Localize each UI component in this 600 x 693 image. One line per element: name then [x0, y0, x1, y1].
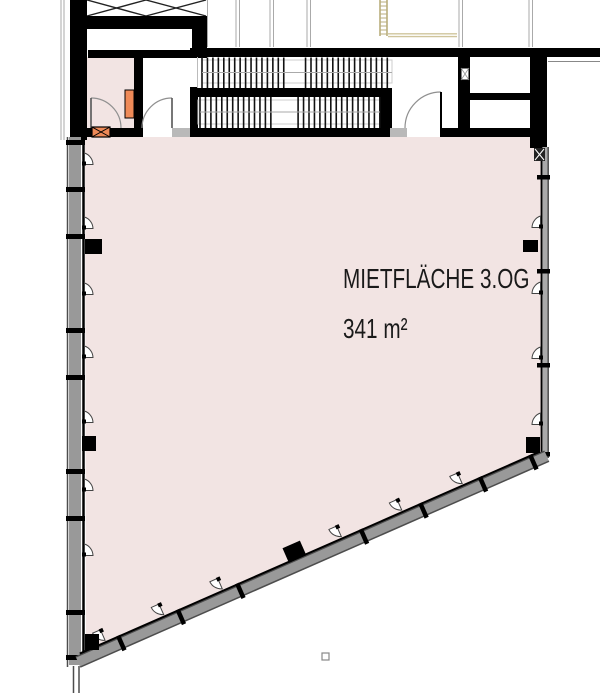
duct-marker-icon [125, 90, 134, 118]
facade-mullion-tick [66, 610, 85, 615]
floor-plan-page: MIETFLÄCHE 3.OG 341 m² [0, 0, 600, 693]
facade-mullion-tick [66, 187, 85, 192]
column [85, 634, 99, 650]
door-swing-arc [405, 92, 441, 128]
wall-stair-east [380, 97, 392, 128]
wall-room-divider [134, 57, 143, 128]
facade-band [542, 147, 548, 457]
column [82, 436, 96, 451]
column [85, 239, 102, 254]
column [526, 437, 540, 453]
facade-mullion-tick [537, 269, 550, 274]
door-swing-arc [142, 98, 172, 128]
column [523, 240, 538, 252]
facade-mullion-tick [66, 234, 85, 239]
wall-south-seg2 [110, 128, 143, 137]
facade-mullion-tick [66, 469, 85, 474]
wall-east [530, 55, 547, 148]
area-name-label: MIETFLÄCHE 3.OG [343, 264, 529, 295]
fire-damper-x-icon [92, 127, 110, 137]
wall-south-seg1 [85, 128, 92, 137]
wall-stair-middle [190, 88, 392, 97]
walls [70, 0, 600, 148]
wall-stub [192, 29, 207, 48]
elevator-shaft [87, 0, 206, 16]
facade-band [69, 137, 81, 665]
wall-shaftroom-divider [470, 93, 533, 100]
rental-area-fill [85, 137, 541, 657]
floor-plan-drawing: MIETFLÄCHE 3.OG 341 m² [0, 0, 600, 693]
facade-mullion-tick [537, 363, 550, 368]
facade-mullion-tick [66, 140, 85, 145]
ladder-icon [380, 0, 387, 36]
wall-elevator-south [70, 16, 207, 29]
facade-mullion-tick [66, 328, 85, 333]
window-opener-icon [534, 148, 545, 161]
facade-mullion-tick [66, 375, 85, 380]
wall-south-seg3 [190, 128, 390, 137]
area-size-label: 341 m² [343, 314, 407, 345]
shaft-vent-icon [461, 68, 469, 80]
survey-point-marker [322, 653, 329, 660]
wall-rooms-north [88, 50, 207, 58]
facade-mullion-tick [66, 516, 85, 521]
facade-mullion-tick [537, 175, 550, 180]
